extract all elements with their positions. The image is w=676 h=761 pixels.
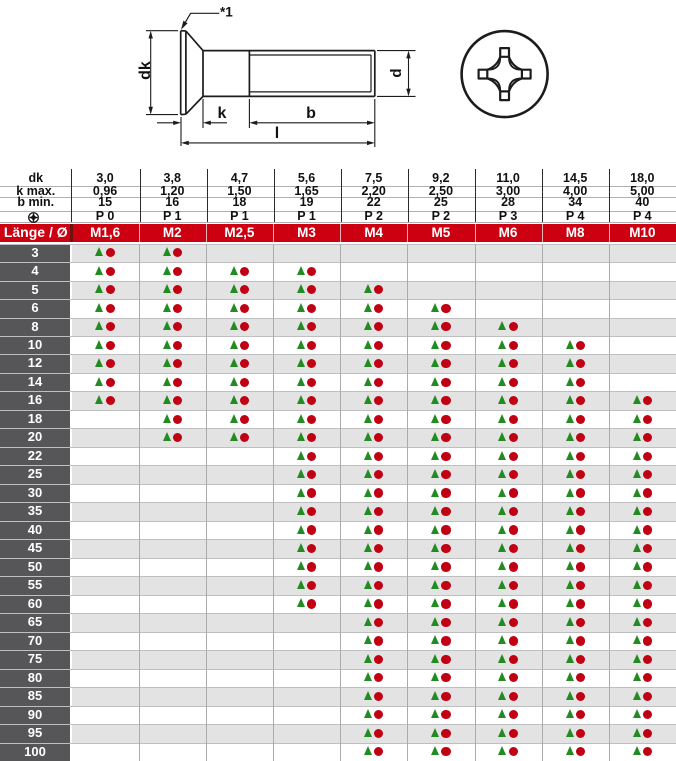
svg-text:k: k [218,105,227,122]
svg-text:b: b [306,105,316,122]
svg-text:dk: dk [137,61,154,80]
svg-text:*1: *1 [220,5,233,20]
svg-text:d: d [388,68,405,77]
svg-text:l: l [275,125,279,142]
